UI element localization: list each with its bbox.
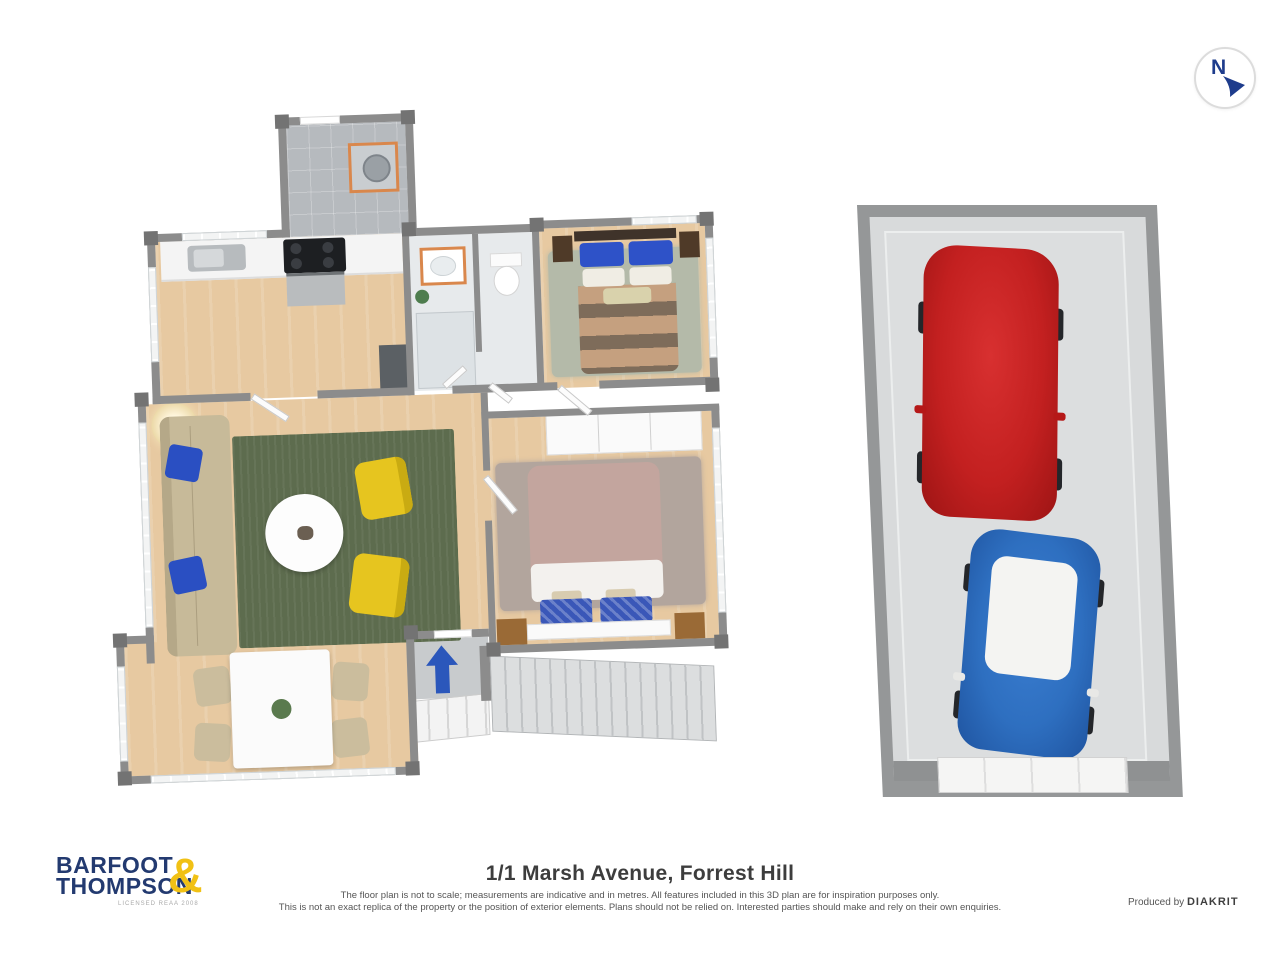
- side-mirror: [953, 672, 966, 681]
- porch-steps: [409, 693, 490, 743]
- dining-chair: [330, 717, 370, 759]
- north-arrow-icon: [1221, 73, 1247, 99]
- nightstand: [496, 618, 527, 645]
- staircase: [490, 656, 717, 742]
- shower: [416, 311, 477, 389]
- dining-chair: [192, 665, 233, 708]
- wall-post: [134, 392, 148, 406]
- floorplan-page: { "title": "1/1 Marsh Avenue, Forrest Hi…: [0, 0, 1280, 960]
- blue-car-roof: [984, 554, 1079, 682]
- credit-prefix: Produced by: [1128, 897, 1187, 908]
- side-mirror: [914, 405, 926, 414]
- red-car-body: [922, 244, 1059, 523]
- wall-post: [405, 761, 419, 775]
- wall-post: [401, 110, 415, 124]
- oven: [286, 271, 345, 306]
- page-title: 1/1 Marsh Avenue, Forrest Hill: [0, 862, 1280, 886]
- garage: [857, 205, 1183, 797]
- sink-basin: [193, 249, 224, 268]
- blue-pillow: [168, 555, 208, 595]
- entry-arrow-icon: [423, 645, 461, 696]
- blue-car: [956, 526, 1103, 762]
- blue-pillow: [628, 240, 673, 266]
- wall-post: [275, 114, 289, 128]
- armchair: [348, 552, 411, 618]
- wall-segment: [472, 629, 489, 638]
- table-decor: [297, 526, 313, 541]
- wall-post: [402, 222, 416, 236]
- producer-credit: Produced by DIAKRIT: [1128, 896, 1239, 908]
- wall-post: [486, 642, 500, 656]
- armchair: [353, 455, 414, 521]
- garage-wall-stub: [1123, 761, 1170, 781]
- bed2-duvet: [527, 462, 663, 573]
- wall-post: [144, 231, 158, 245]
- dining-chair: [194, 722, 232, 762]
- white-pillow: [582, 268, 625, 287]
- front-door: [434, 629, 472, 638]
- wall-post: [404, 625, 418, 639]
- white-pillow: [629, 266, 672, 285]
- compass: N: [1194, 47, 1256, 109]
- wall-segment: [540, 382, 557, 391]
- wall-segment: [481, 393, 491, 471]
- garage-door: [937, 757, 1129, 793]
- blue-pillow: [579, 242, 624, 268]
- blue-pillow: [164, 444, 203, 483]
- credit-brand: DIAKRIT: [1187, 896, 1239, 908]
- floor-plan: [83, 97, 755, 831]
- dining-chair: [331, 661, 370, 701]
- wall-post: [118, 771, 132, 785]
- wall-post: [714, 634, 728, 648]
- wall-post: [705, 377, 719, 391]
- side-mirror: [1087, 688, 1100, 697]
- nightstand: [552, 236, 573, 263]
- wall-post: [529, 218, 543, 232]
- red-car: [922, 244, 1059, 523]
- wall-post: [113, 633, 127, 647]
- disclaimer-line1: The floor plan is not to scale; measurem…: [0, 890, 1280, 902]
- side-mirror: [1054, 412, 1066, 421]
- nightstand: [674, 612, 705, 639]
- garage-wall-stub: [893, 761, 940, 781]
- bed1-throw-pillow: [603, 287, 652, 305]
- entry-door-top: [300, 116, 340, 125]
- disclaimer-line2: This is not an exact replica of the prop…: [0, 902, 1280, 914]
- nightstand: [679, 231, 700, 258]
- wall-post: [699, 212, 713, 226]
